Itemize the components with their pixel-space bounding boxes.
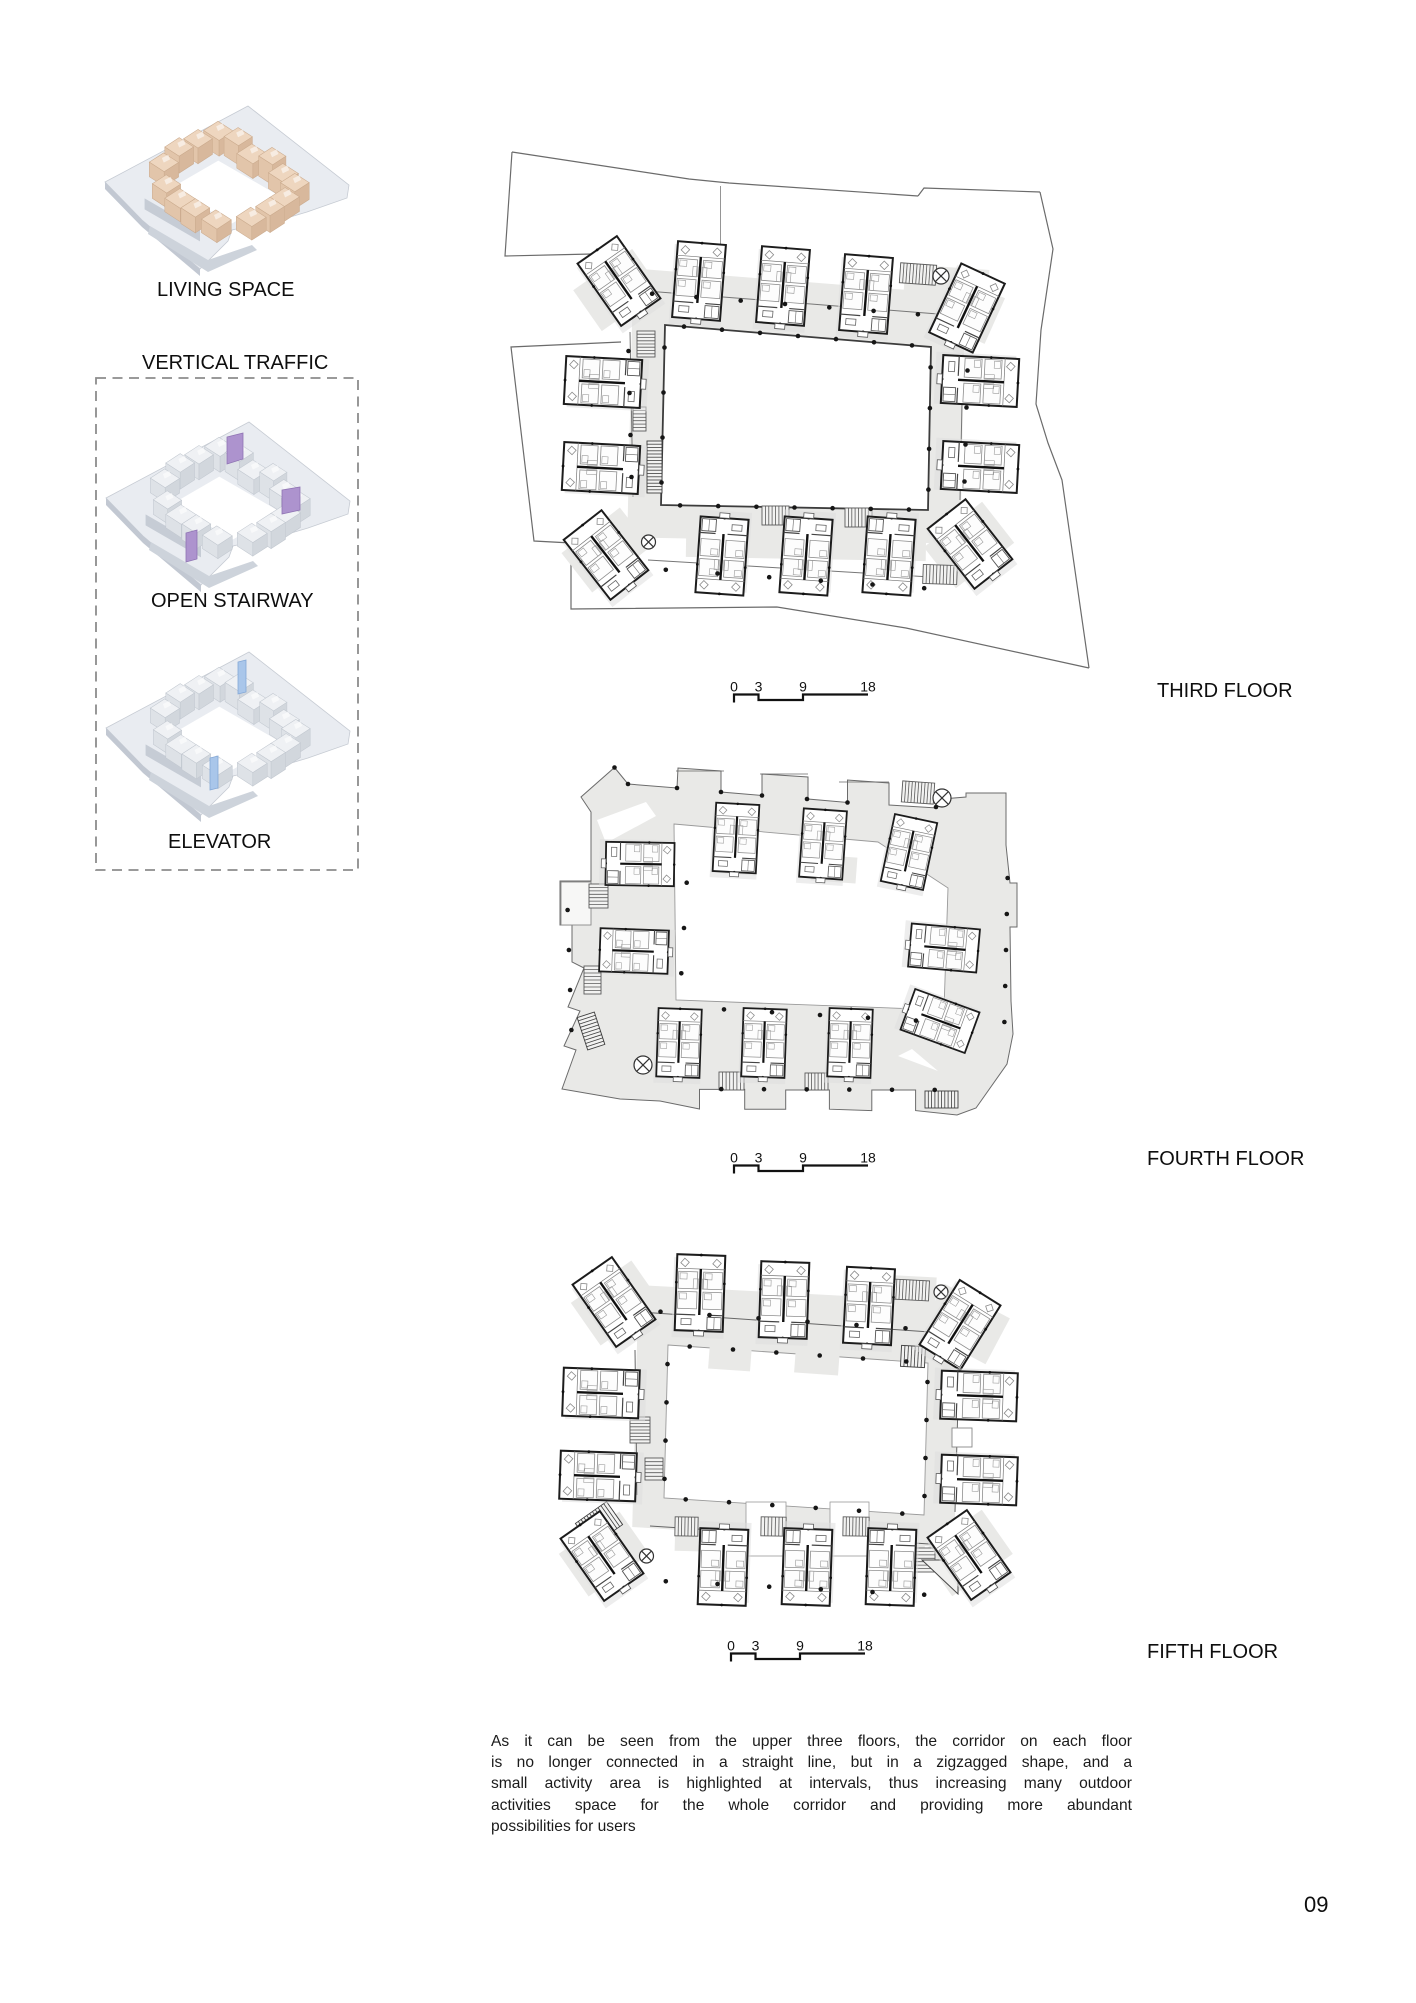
svg-text:0: 0 <box>730 1150 738 1166</box>
svg-text:9: 9 <box>799 1150 807 1166</box>
svg-text:3: 3 <box>755 679 763 695</box>
svg-text:9: 9 <box>799 679 807 695</box>
svg-text:18: 18 <box>860 679 876 695</box>
svg-text:18: 18 <box>857 1638 873 1654</box>
svg-text:0: 0 <box>730 679 738 695</box>
svg-text:0: 0 <box>727 1638 735 1654</box>
svg-text:3: 3 <box>752 1638 760 1654</box>
svg-text:18: 18 <box>860 1150 876 1166</box>
svg-text:3: 3 <box>755 1150 763 1166</box>
svg-text:9: 9 <box>796 1638 804 1654</box>
